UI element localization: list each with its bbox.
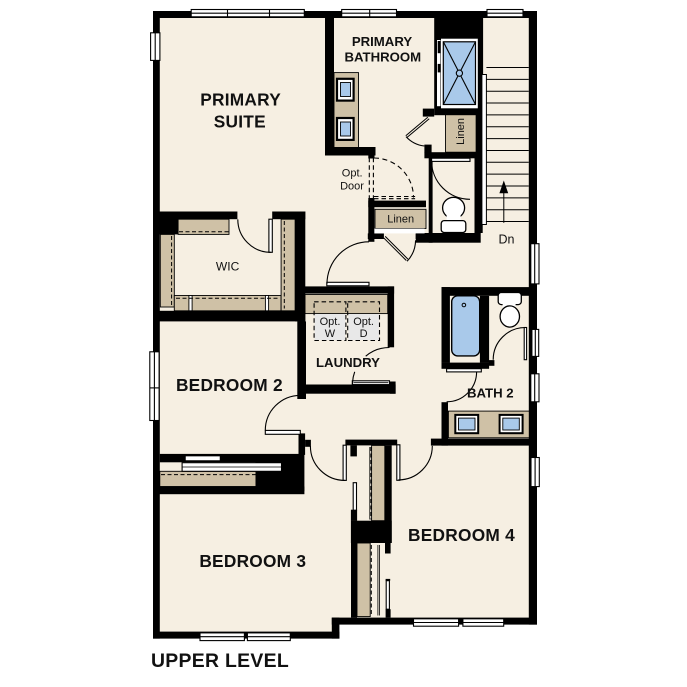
svg-text:PRIMARY: PRIMARY xyxy=(352,34,413,49)
svg-text:W: W xyxy=(325,328,336,340)
svg-text:LAUNDRY: LAUNDRY xyxy=(316,355,380,370)
svg-text:Opt.: Opt. xyxy=(342,168,363,180)
svg-text:Linen: Linen xyxy=(455,118,467,145)
svg-text:PRIMARY: PRIMARY xyxy=(200,90,281,110)
svg-text:SUITE: SUITE xyxy=(214,111,266,131)
svg-text:Door: Door xyxy=(340,181,364,193)
svg-text:Linen: Linen xyxy=(387,214,414,226)
svg-text:Opt.: Opt. xyxy=(320,316,341,328)
svg-text:BEDROOM 2: BEDROOM 2 xyxy=(176,375,283,395)
svg-text:UPPER LEVEL: UPPER LEVEL xyxy=(151,650,289,672)
svg-text:BEDROOM 4: BEDROOM 4 xyxy=(408,525,515,545)
svg-text:D: D xyxy=(360,328,368,340)
svg-text:Opt.: Opt. xyxy=(353,316,374,328)
svg-text:BATH 2: BATH 2 xyxy=(467,386,514,401)
svg-text:WIC: WIC xyxy=(216,259,240,273)
svg-text:Dn: Dn xyxy=(499,233,515,247)
svg-text:BEDROOM 3: BEDROOM 3 xyxy=(199,551,306,571)
svg-text:BATHROOM: BATHROOM xyxy=(344,49,421,64)
